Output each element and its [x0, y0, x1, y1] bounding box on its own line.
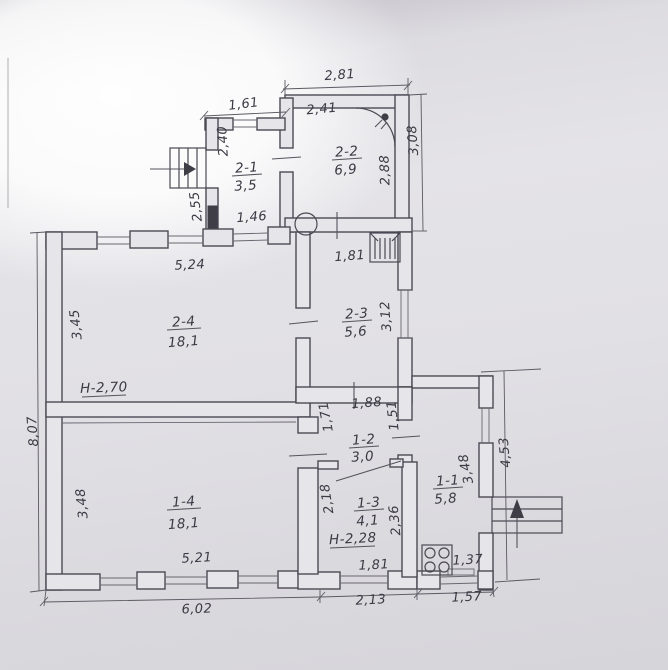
- dim-label-161: 1,61: [227, 95, 259, 114]
- flue-shaft: [208, 206, 217, 228]
- dim-label-171: 1,71: [316, 400, 337, 433]
- room-label-1-1: 1-1 5,8: [433, 472, 463, 508]
- room-label-1-2: 1-2 3,0: [349, 431, 379, 466]
- room-area: 18,1: [167, 515, 200, 533]
- dim-label-281: 2,81: [324, 67, 356, 84]
- dim-label-807: 8,07: [25, 415, 42, 447]
- dim-label-157: 1,57: [451, 589, 483, 606]
- room-area: 5,6: [344, 323, 368, 341]
- floor-plan-drawing: 2,81 2,41 1,61 2,40 3,08 2,88 2,55 1,46 …: [0, 0, 668, 670]
- shower-icon: [356, 108, 395, 147]
- dim-label-312: 3,12: [378, 300, 395, 332]
- dim-label-218: 2,18: [318, 482, 338, 515]
- dim-label-151: 1,51: [384, 399, 402, 431]
- dim-label-288: 2,88: [377, 155, 393, 186]
- room-area: 4,1: [356, 512, 380, 530]
- dim-label-521: 5,21: [181, 550, 212, 567]
- room-area: 3,0: [351, 448, 375, 466]
- dim-label-181-room23: 1,81: [334, 248, 366, 265]
- dim-label-188: 1,88: [351, 395, 383, 412]
- height-label-lower: H-2,28: [329, 530, 377, 548]
- room-area: 3,5: [234, 177, 258, 195]
- svg-text:H-2,70: H-2,70: [80, 379, 128, 397]
- dim-label-602: 6,02: [181, 601, 212, 617]
- dim-label-181-room13: 1,81: [358, 557, 389, 574]
- height-label-upper: H-2,70: [80, 379, 128, 397]
- dim-label-137: 1,37: [452, 552, 484, 569]
- floor-plan-photo: 2,81 2,41 1,61 2,40 3,08 2,88 2,55 1,46 …: [0, 0, 668, 670]
- svg-text:H-2,28: H-2,28: [329, 530, 377, 548]
- dim-label-240: 2,40: [215, 126, 232, 157]
- room-area: 5,8: [434, 490, 458, 508]
- dim-label-453: 4,53: [497, 436, 515, 468]
- room-label-2-4: 2-4 18,1: [167, 313, 201, 351]
- dim-label-348-room14: 3,48: [73, 487, 91, 519]
- room-area: 18,1: [167, 333, 200, 351]
- room-label-2-1: 2-1 3,5: [232, 159, 262, 195]
- room-area: 6,9: [334, 161, 358, 179]
- room-label-2-3: 2-3 5,6: [342, 305, 372, 341]
- dim-label-308: 3,08: [405, 124, 422, 156]
- exterior-walls: [46, 95, 493, 590]
- room-label-2-2: 2-2 6,9: [332, 143, 362, 179]
- room-label-1-4: 1-4 18,1: [167, 493, 201, 533]
- dim-label-345: 3,45: [67, 308, 85, 340]
- dim-label-524: 5,24: [174, 257, 205, 274]
- dim-label-213: 2,13: [355, 592, 386, 609]
- room-label-1-3: 1-3 4,1: [354, 494, 384, 530]
- dim-label-241: 2,41: [306, 101, 338, 119]
- dim-label-255: 2,55: [187, 190, 206, 222]
- heating-stove-icon: [370, 233, 400, 262]
- dim-label-146: 1,46: [236, 209, 268, 226]
- dimension-lines: [30, 78, 541, 606]
- entry-stairs-left-icon: [150, 148, 206, 188]
- dim-label-236: 2,36: [387, 504, 405, 536]
- entry-stairs-right-icon: [492, 497, 562, 548]
